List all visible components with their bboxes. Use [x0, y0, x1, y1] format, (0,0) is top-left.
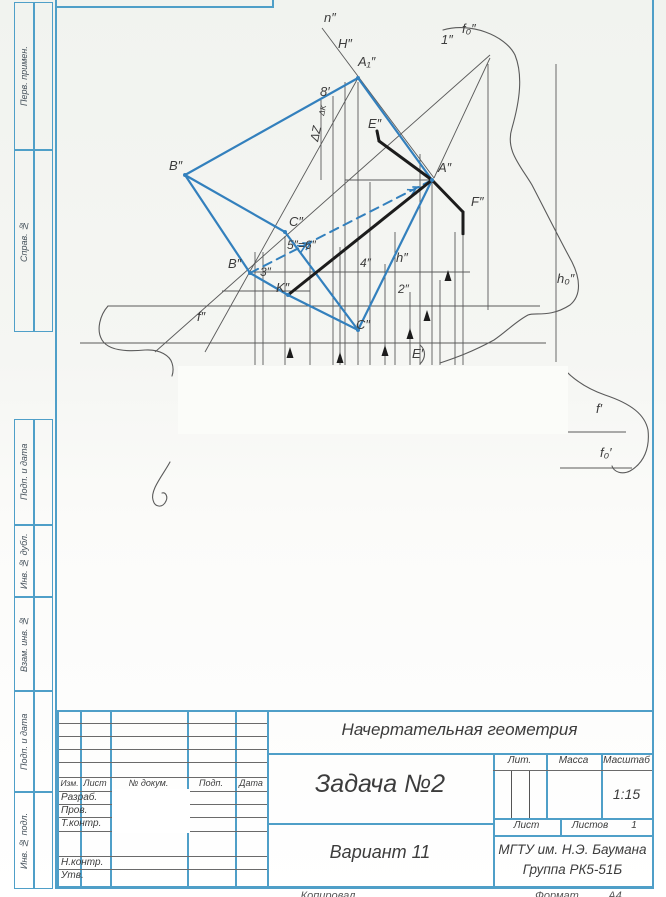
arrowhead-up: [382, 345, 389, 356]
thick-edge: [432, 180, 463, 212]
thick-edge: [377, 131, 379, 141]
point-label: H″: [338, 36, 352, 51]
margin-box-divider: [33, 598, 35, 690]
col-izm: Изм.: [59, 778, 80, 788]
col-data: Дата: [235, 778, 267, 788]
tb-line: [267, 823, 493, 825]
figure-point: [283, 230, 287, 234]
figure-point: [248, 271, 252, 275]
thick-edge: [379, 141, 432, 180]
tb-line: [59, 723, 267, 724]
point-label: 5″=6″: [287, 238, 317, 252]
tb-line: [511, 770, 512, 818]
margin-box-label: Инв. № подл.: [15, 793, 33, 888]
figure-edge: [288, 295, 358, 330]
erased-area-titleblock: [112, 789, 190, 833]
point-label: E′: [412, 346, 424, 361]
figure-edge: [185, 175, 285, 232]
erased-area-drawing: [178, 366, 568, 434]
freehand-break-line: [153, 462, 170, 506]
point-label: 8′: [320, 84, 330, 99]
course-title: Начертательная геометрия: [267, 720, 652, 740]
tb-line: [59, 736, 267, 737]
arrowhead-up: [287, 347, 294, 358]
point-label: f″: [197, 309, 206, 324]
variant-title: Вариант 11: [267, 842, 493, 863]
margin-box: Инв. № дубл.: [14, 525, 53, 597]
tb-line: [59, 762, 267, 763]
row-tkontr: Т.контр.: [61, 818, 101, 829]
point-label: f₀″: [462, 21, 476, 36]
point-label: 3″: [260, 265, 272, 279]
arrowhead-up: [337, 352, 344, 363]
margin-box: Перв. примен.: [14, 2, 53, 150]
footer-copied: Копировал: [268, 890, 388, 897]
arrowhead-up: [407, 328, 414, 339]
margin-box-label: Подп. и дата: [15, 420, 33, 524]
point-label: F″: [471, 194, 484, 209]
point-label: A₁″: [357, 54, 376, 69]
margin-box: Инв. № подл.: [14, 792, 53, 889]
freehand-break-line: [440, 28, 579, 363]
footer-format-value: А4: [600, 890, 630, 897]
point-label: B″: [228, 256, 242, 271]
margin-box: Справ. №: [14, 150, 53, 332]
freehand-break-line: [99, 306, 173, 376]
point-label: C″: [289, 214, 303, 229]
row-prov: Пров.: [61, 805, 87, 816]
point-label: A″: [437, 160, 452, 175]
margin-box-divider: [33, 3, 35, 149]
point-label: E″: [368, 116, 382, 131]
tb-line: [529, 770, 530, 818]
point-label: 2″: [397, 282, 410, 296]
title-block: Начертательная геометрия Задача №2 Вариа…: [57, 710, 654, 888]
scale-label: Масштаб: [601, 755, 652, 766]
margin-box: Подп. и дата: [14, 691, 53, 792]
point-label: ΔK: [317, 103, 328, 117]
margin-box-label: Перв. примен.: [15, 3, 33, 149]
point-label: n″: [324, 10, 336, 25]
tb-line: [235, 712, 237, 886]
tb-line: [59, 869, 267, 870]
top-stamp-box: [55, 0, 274, 8]
row-razrab: Разраб.: [61, 792, 97, 803]
margin-box-divider: [33, 151, 35, 331]
sheets-value: 1: [619, 820, 649, 831]
task-title: Задача №2: [267, 770, 493, 799]
tb-line: [493, 835, 652, 837]
margin-box-divider: [33, 420, 35, 524]
point-label: f₀′: [600, 445, 612, 460]
col-doc: № докум.: [110, 778, 187, 788]
scale-value: 1:15: [601, 786, 652, 802]
row-nkontr: Н.контр.: [61, 857, 103, 868]
construction-line: [205, 78, 358, 352]
row-utv: Утв.: [61, 870, 84, 881]
drawing-sheet: n″H″A₁″1″f₀″8′E″B″A″F″C″5″=6″B″3″4″h″K″2…: [0, 0, 666, 897]
point-label: ΔZ: [307, 124, 324, 144]
margin-box-label: Справ. №: [15, 151, 33, 331]
col-list: Лист: [80, 778, 110, 788]
margin-box-label: Взам. инв. №: [15, 598, 33, 690]
figure-edge: [185, 78, 358, 175]
margin-box: Подп. и дата: [14, 419, 53, 525]
lit-label: Лит.: [493, 755, 546, 766]
margin-box-divider: [33, 692, 35, 791]
tb-line: [493, 770, 652, 771]
figure-point: [356, 76, 360, 80]
point-label: K″: [276, 280, 290, 295]
point-label: h₀″: [557, 271, 575, 286]
sheet-label: Лист: [493, 820, 560, 831]
margin-box-divider: [33, 526, 35, 596]
point-label: B″: [169, 158, 183, 173]
margin-box-label: Подп. и дата: [15, 692, 33, 791]
point-label: 4″: [360, 256, 372, 270]
point-label: C″: [356, 317, 370, 332]
org-name: МГТУ им. Н.Э. Баумана: [493, 842, 652, 857]
footer-format-label: Формат: [527, 890, 587, 897]
point-label: h″: [396, 250, 408, 265]
margin-box-label: Инв. № дубл.: [15, 526, 33, 596]
arrowhead-up: [424, 310, 431, 321]
figure-point: [183, 173, 187, 177]
tb-line: [59, 749, 267, 750]
mass-label: Масса: [546, 755, 601, 766]
sheets-label: Листов: [560, 820, 620, 831]
col-podp: Подп.: [187, 778, 235, 788]
point-label: f′: [596, 401, 603, 416]
margin-box-divider: [33, 793, 35, 888]
figure-point: [430, 178, 434, 182]
org-group: Группа РК5-51Б: [493, 862, 652, 877]
point-label: 1″: [441, 32, 453, 47]
margin-box: Взам. инв. №: [14, 597, 53, 691]
